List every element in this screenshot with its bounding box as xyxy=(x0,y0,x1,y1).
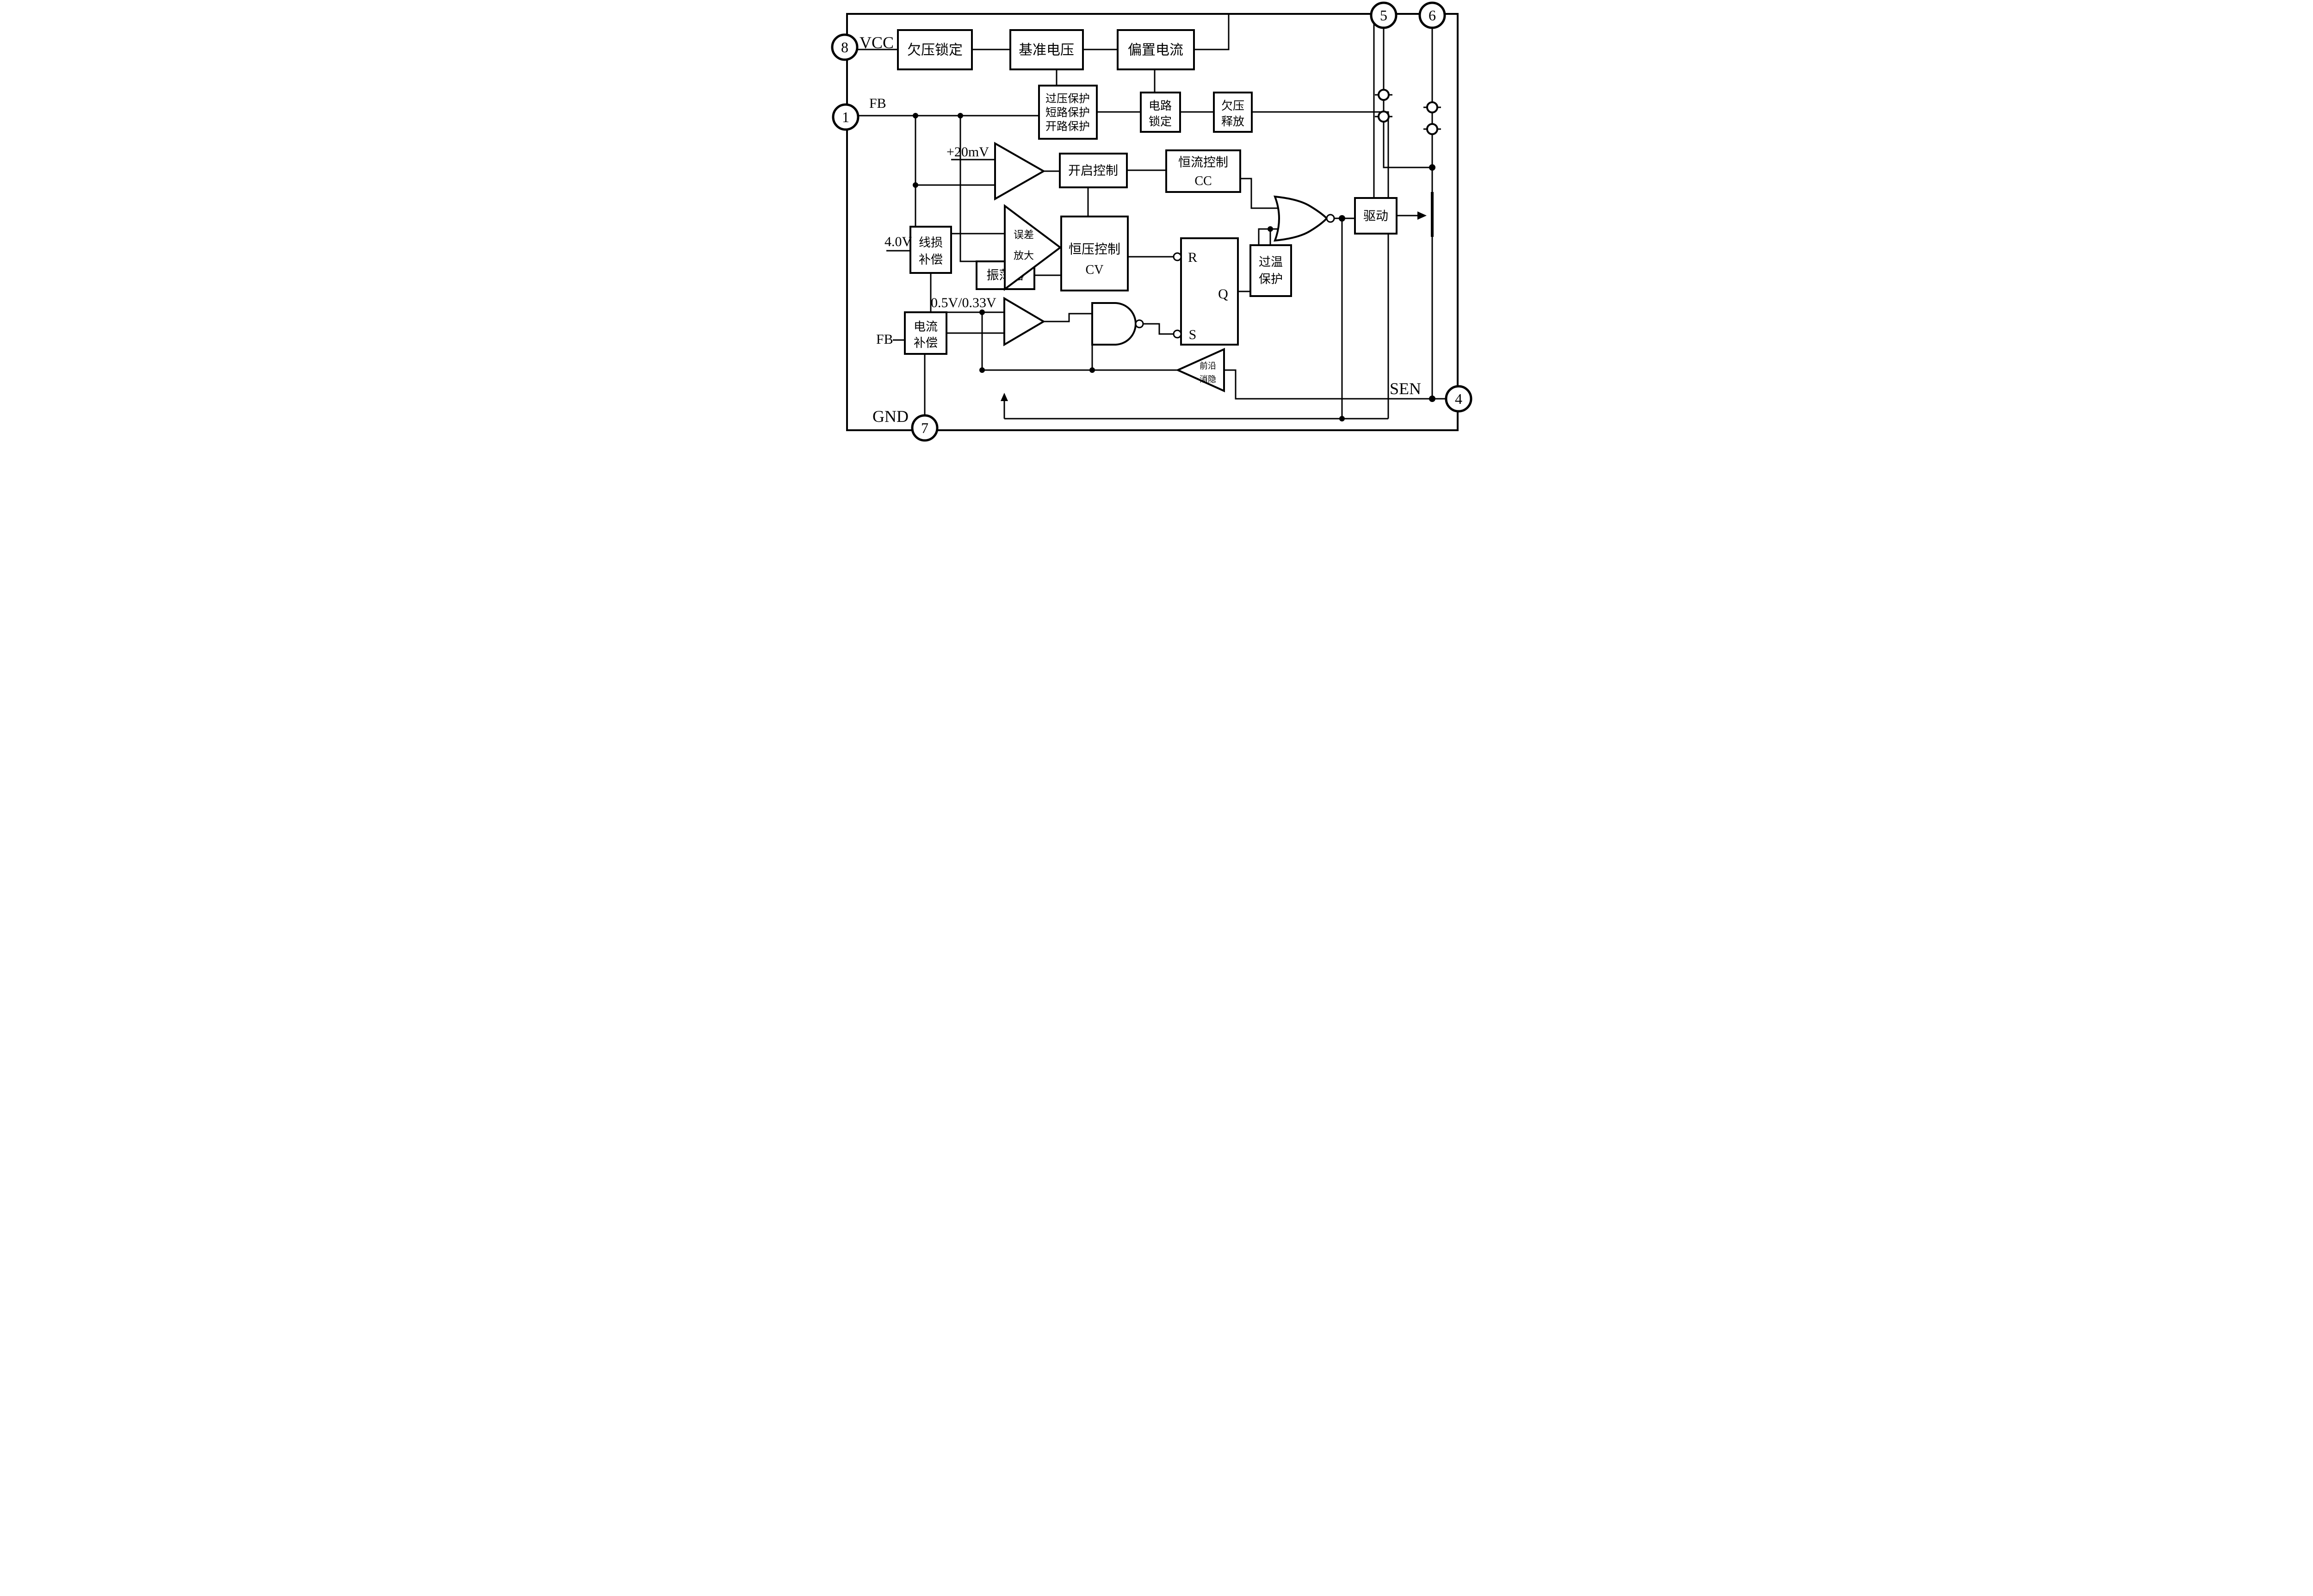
ref-20mv-label: +20mV xyxy=(946,144,989,160)
pin-8-number: 8 xyxy=(841,39,848,56)
nand-gate xyxy=(1092,303,1136,345)
block-uv-release-line2: 释放 xyxy=(1221,115,1244,128)
pad-symbol-6b xyxy=(1427,124,1437,134)
junction-dot xyxy=(979,367,985,373)
block-current-comp-line2: 补偿 xyxy=(914,336,938,350)
block-line-loss-line1: 线损 xyxy=(919,236,943,250)
junction-dot xyxy=(913,113,918,118)
block-line-loss-line2: 补偿 xyxy=(919,253,943,267)
diagram-svg: 欠压锁定 基准电压 偏置电流 过压保护 短路保护 开路保护 电路 锁定 欠压 释… xyxy=(794,0,1519,456)
junction-dot xyxy=(958,113,963,118)
block-otp-line1: 过温 xyxy=(1259,255,1283,269)
nor-bubble-icon xyxy=(1327,215,1334,222)
block-latch-line2: 锁定 xyxy=(1149,115,1172,128)
flipflop-q-label: Q xyxy=(1218,286,1228,302)
block-uvlo-label: 欠压锁定 xyxy=(907,42,963,58)
block-protection-line2: 短路保护 xyxy=(1045,106,1090,119)
fb-net-label: FB xyxy=(876,332,893,347)
flipflop-r-label: R xyxy=(1188,250,1197,265)
block-protection-line1: 过压保护 xyxy=(1045,92,1090,105)
leb-line1: 前沿 xyxy=(1200,361,1216,371)
pin-7-number: 7 xyxy=(921,420,928,436)
junction-dot xyxy=(1429,164,1435,171)
junction-dot xyxy=(1268,226,1273,232)
gnd-label: GND xyxy=(872,407,909,426)
fb-pin-label: FB xyxy=(869,96,886,111)
block-uv-release-line1: 欠压 xyxy=(1221,99,1244,112)
error-amp-line1: 误差 xyxy=(1014,229,1034,241)
pad-symbol-6a xyxy=(1427,102,1437,112)
r-input-bubble-icon xyxy=(1174,253,1181,260)
pad-symbol-5a xyxy=(1379,90,1389,100)
junction-dot xyxy=(1339,215,1345,222)
block-cv-line1: 恒压控制 xyxy=(1069,241,1120,257)
pin-4-number: 4 xyxy=(1455,390,1462,407)
block-latch-line1: 电路 xyxy=(1149,99,1172,112)
junction-dot xyxy=(1429,396,1435,402)
vcc-label: VCC xyxy=(860,33,894,52)
block-cc-line1: 恒流控制 xyxy=(1178,155,1228,170)
pin-6-number: 6 xyxy=(1429,7,1436,24)
pin-5-number: 5 xyxy=(1380,7,1387,24)
block-otp-line2: 保护 xyxy=(1259,272,1283,286)
block-bias-label: 偏置电流 xyxy=(1128,42,1183,58)
sen-label: SEN xyxy=(1390,379,1421,398)
block-otp xyxy=(1250,245,1291,296)
ref-4v-label: 4.0V xyxy=(884,234,912,249)
block-cc-line2: CC xyxy=(1194,174,1212,188)
pad-symbol-5b xyxy=(1379,111,1389,122)
block-current-comp-line1: 电流 xyxy=(914,320,938,334)
ref-05-033-label: 0.5V/0.33V xyxy=(931,295,996,310)
junction-dot xyxy=(1089,367,1095,373)
block-protection-line3: 开路保护 xyxy=(1045,120,1090,133)
s-input-bubble-icon xyxy=(1174,330,1181,338)
block-diagram-canvas: 欠压锁定 基准电压 偏置电流 过压保护 短路保护 开路保护 电路 锁定 欠压 释… xyxy=(794,0,1519,456)
block-vref-label: 基准电压 xyxy=(1019,42,1074,58)
error-amp-line2: 放大 xyxy=(1014,250,1034,262)
pin-1-number: 1 xyxy=(842,109,849,125)
nand-bubble-icon xyxy=(1136,320,1143,328)
block-cv-line2: CV xyxy=(1086,263,1104,277)
block-on-control-label: 开启控制 xyxy=(1068,164,1118,178)
junction-dot xyxy=(913,182,918,188)
flipflop-s-label: S xyxy=(1189,327,1197,342)
block-driver-label: 驱动 xyxy=(1363,209,1388,223)
leb-line2: 消隐 xyxy=(1200,375,1216,384)
junction-dot xyxy=(1339,416,1345,421)
